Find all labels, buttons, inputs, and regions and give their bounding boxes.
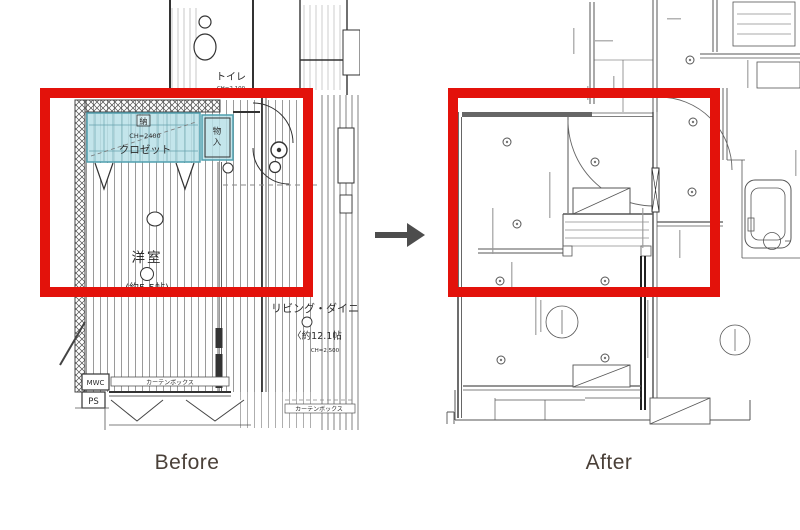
label-ps: PS [88, 397, 99, 407]
after-caption: After [549, 451, 669, 475]
before-caption: Before [127, 451, 247, 475]
right-arrow-icon [371, 219, 429, 251]
before-after-comparison: トイレ CH=2,100 納 CH=2400 クロゼット 物 入 洋室 (約5.… [0, 0, 800, 530]
label-living-ch: CH=2,500 [311, 348, 340, 354]
label-living-dining: リビング・ダイニン [271, 301, 360, 315]
label-living-size: 〈約12.1帖 [292, 330, 342, 342]
highlight-box-after [448, 88, 720, 297]
highlight-box-before [40, 88, 313, 297]
label-toilet: トイレ [216, 72, 246, 83]
label-mwc: MWC [87, 379, 105, 387]
label-curtain-box-2: カーテンボックス [295, 405, 343, 413]
label-curtain-box: カーテンボックス [146, 379, 194, 387]
